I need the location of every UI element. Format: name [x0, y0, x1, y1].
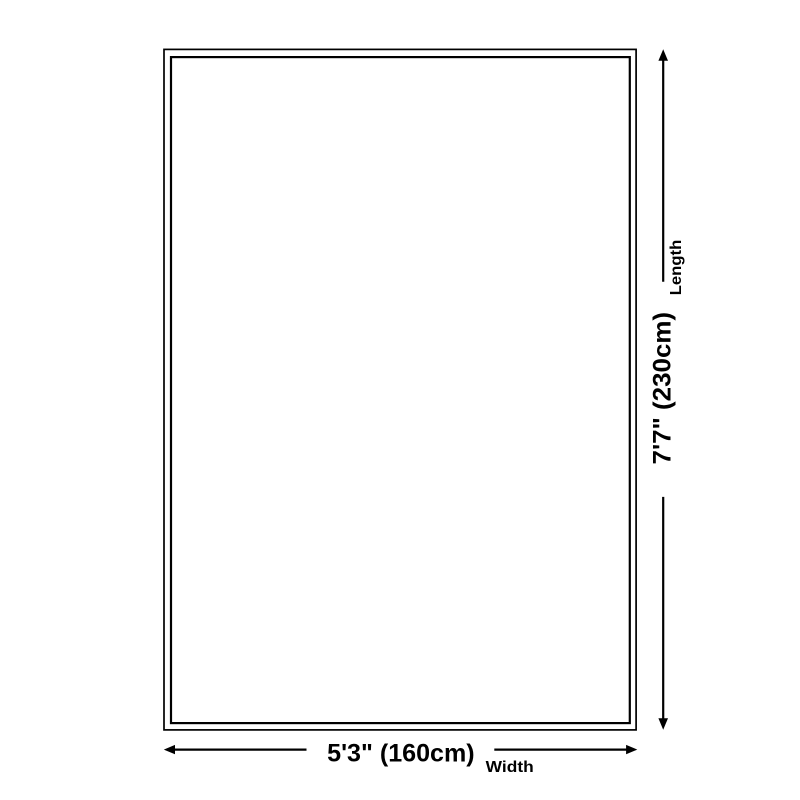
svg-text:7'7" (230cm): 7'7" (230cm) — [648, 312, 676, 465]
svg-text:5'3" (160cm): 5'3" (160cm) — [327, 740, 475, 768]
svg-text:Length: Length — [668, 240, 685, 296]
svg-text:Width: Width — [486, 759, 534, 776]
